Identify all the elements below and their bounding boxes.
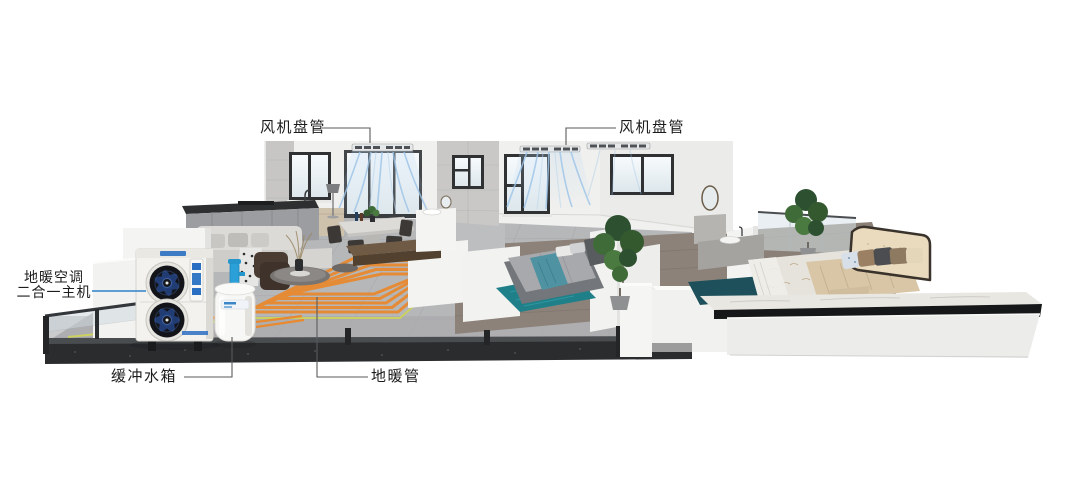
label-main-unit-line1: 地暖空调 xyxy=(2,270,106,285)
heat-pump-unit xyxy=(130,249,220,351)
label-main-unit-line2: 二合一主机 xyxy=(2,285,106,300)
hvac-cutaway-diagram: 风机盘管 风机盘管 地暖空调 二合一主机 缓冲水箱 地暖管 xyxy=(0,0,1080,504)
fan-bottom xyxy=(146,299,188,341)
leader-fan-coil-left xyxy=(322,128,370,143)
bathroom-window xyxy=(452,155,484,189)
fan-top xyxy=(146,262,188,304)
label-fan-coil-right: 风机盘管 xyxy=(619,120,685,136)
label-buffer-tank: 缓冲水箱 xyxy=(111,369,177,385)
bedroom2-window xyxy=(608,154,676,198)
apartment-cutaway-scene xyxy=(0,0,1080,504)
brand-logo xyxy=(160,251,186,256)
kitchen-window xyxy=(287,152,333,203)
label-main-unit: 地暖空调 二合一主机 xyxy=(2,270,106,300)
fan-coil-vent-right xyxy=(587,143,650,149)
label-fan-coil-left: 风机盘管 xyxy=(260,120,326,136)
right-podium xyxy=(700,292,1042,358)
airflow-middle xyxy=(506,151,594,210)
fan-coil-vent-left xyxy=(352,144,413,151)
label-floor-pipe: 地暖管 xyxy=(371,369,421,385)
